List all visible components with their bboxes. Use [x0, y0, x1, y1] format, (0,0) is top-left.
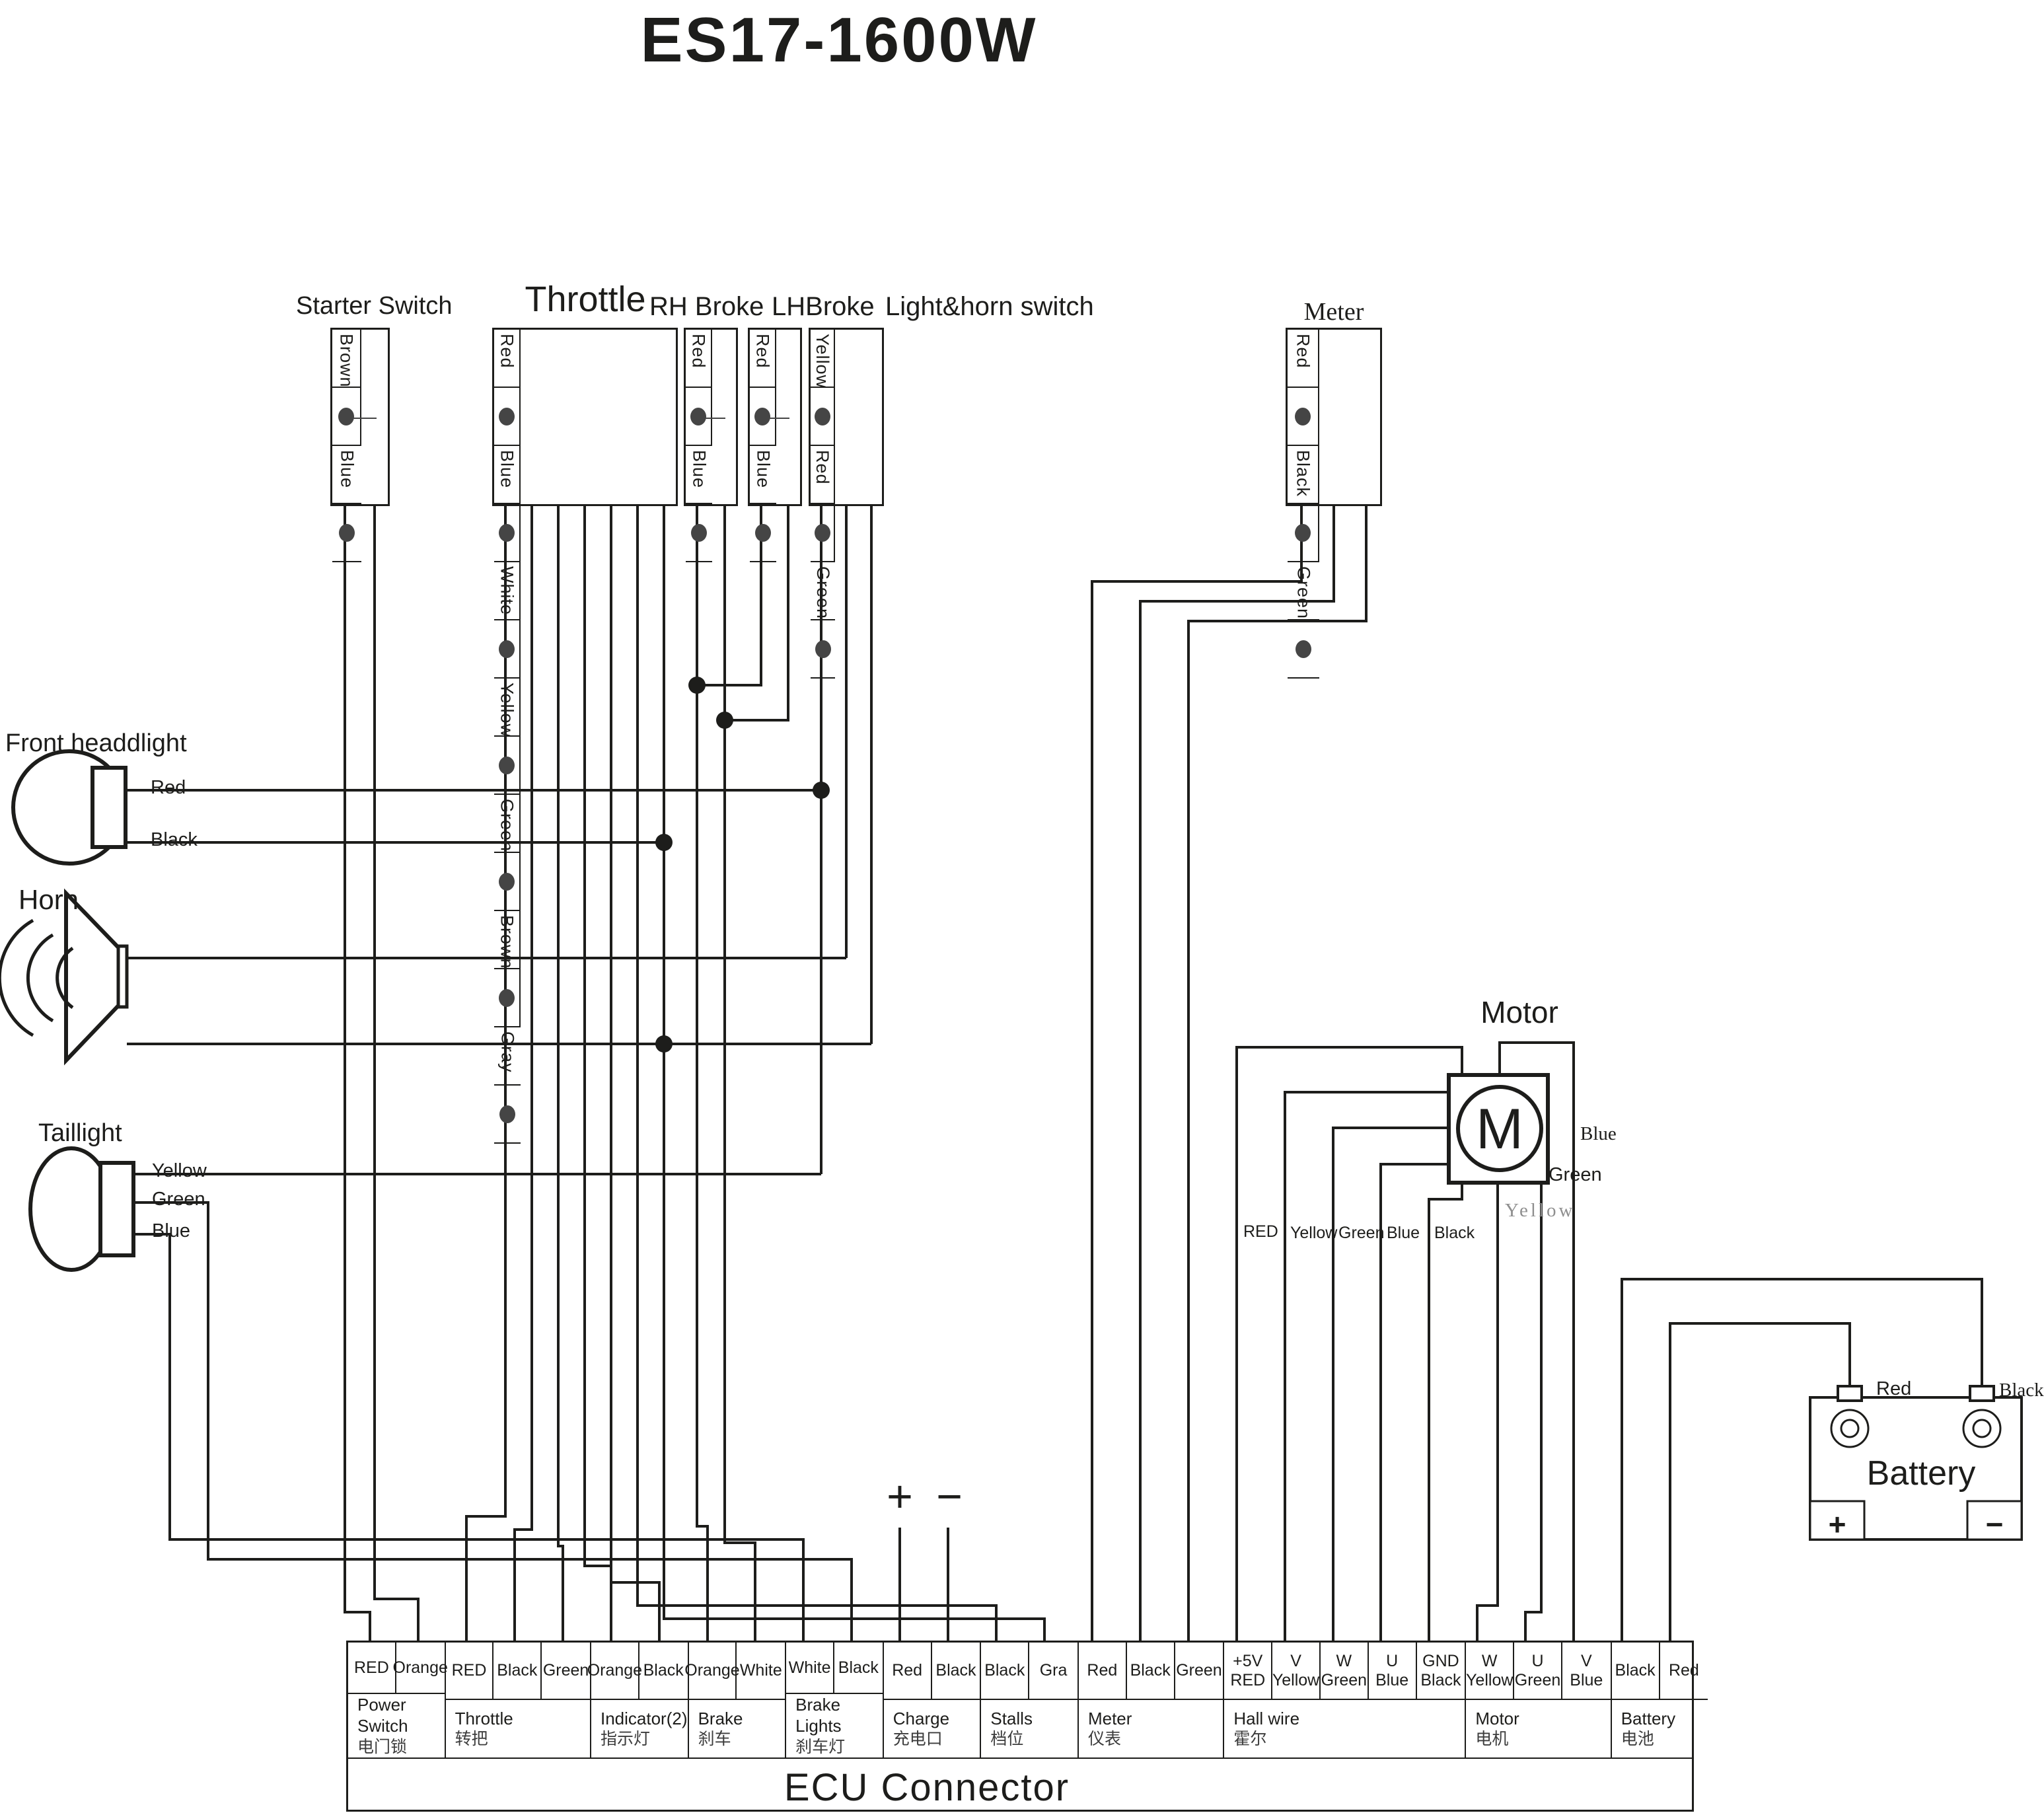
- pin-contact-dot: [815, 640, 831, 658]
- ecu-pin: Red: [884, 1643, 932, 1700]
- connector-pin: Blue: [332, 446, 361, 562]
- ecu-pin: Gra: [1029, 1643, 1077, 1700]
- pin-label: Red: [686, 330, 711, 388]
- wiring-diagram: ES17-1600W Starter Switch Throttle RH Br…: [0, 0, 2044, 1813]
- wire-phase-yellow: [1477, 1183, 1498, 1641]
- pin-label: Blue: [750, 446, 776, 504]
- motor-symbol: M: [1476, 1097, 1523, 1162]
- wire-hall-black: [1429, 1183, 1462, 1641]
- ecu-group: OrangeBlack Indicator(2) 指示灯: [591, 1643, 689, 1757]
- ecu-pin: RED: [446, 1643, 494, 1700]
- ecu-group: W YellowU GreenV Blue Motor 电机: [1466, 1643, 1611, 1757]
- pin-contact-dot: [1295, 524, 1311, 542]
- ecu-group: BlackGra Stalls 档位: [981, 1643, 1079, 1757]
- taillight-wire-blue-label: Blue: [152, 1220, 190, 1242]
- taillight-label: Taillight: [38, 1119, 122, 1148]
- ecu-group-name: Charge 充电口: [884, 1700, 980, 1757]
- starter-switch-connector: Brown Blue: [330, 328, 390, 506]
- wire-tail-green: [133, 1202, 852, 1641]
- taillight-wire-green-label: Green: [152, 1189, 205, 1210]
- wire-starter-brown: [345, 506, 370, 1641]
- connector-pin: Black: [1288, 446, 1319, 562]
- pin-label: Blue: [494, 446, 519, 504]
- ecu-pin: RED: [348, 1643, 396, 1694]
- motor-label: Motor: [1480, 994, 1558, 1030]
- connector-pin: Red: [750, 330, 776, 446]
- pin-label: Green: [811, 562, 835, 620]
- pin-contact-dot: [690, 408, 706, 425]
- page-title: ES17-1600W: [641, 4, 1038, 77]
- ecu-pin: U Blue: [1369, 1643, 1417, 1700]
- ecu-group: BlackRed Battery 电池: [1612, 1643, 1708, 1757]
- wire-meter-red: [1092, 506, 1301, 1641]
- ecu-group-name: Motor 电机: [1466, 1700, 1610, 1757]
- pin-label: Yellow: [494, 679, 519, 737]
- ecu-group-name: Stalls 档位: [981, 1700, 1077, 1757]
- taillight-icon: [30, 1148, 133, 1270]
- switch-bridge: [699, 418, 725, 419]
- hall-green-label: Green: [1338, 1224, 1384, 1243]
- light-horn-switch-title: Light&horn switch: [885, 292, 1094, 322]
- ecu-group-name: Meter 仪表: [1079, 1700, 1223, 1757]
- connector-pin: Yellow: [811, 330, 835, 446]
- pin-contact-dot: [1296, 640, 1311, 658]
- connector-pin: Brown: [332, 330, 361, 446]
- ecu-pin: Red: [1660, 1643, 1708, 1700]
- ecu-group-name-en: Indicator(2): [601, 1708, 688, 1730]
- ecu-group-name-cn: 刹车灯: [795, 1737, 883, 1757]
- wire-tail-blue: [133, 1234, 803, 1641]
- pin-contact-dot: [499, 640, 515, 658]
- pin-contact-dot: [691, 524, 707, 542]
- ecu-group-name-en: Throttle: [455, 1708, 590, 1730]
- ecu-group-name-en: Motor: [1475, 1708, 1610, 1730]
- headlight-wire-red-label: Red: [151, 777, 186, 799]
- ecu-group: REDOrange Power Switch 电门锁: [348, 1643, 446, 1757]
- hall-red-label: RED: [1243, 1222, 1278, 1241]
- wire-rh-blue: [725, 506, 755, 1641]
- ecu-group: OrangeWhite Brake 刹车: [689, 1643, 787, 1757]
- battery-label: Battery: [1867, 1454, 1976, 1493]
- pin-label: Green: [1288, 562, 1319, 620]
- pin-label: Red: [1288, 330, 1318, 388]
- headlight-icon: [13, 751, 126, 864]
- hall-blue-label: Blue: [1387, 1224, 1420, 1243]
- pin-contact-dot: [754, 408, 770, 425]
- ecu-group: RedBlackGreen Meter 仪表: [1079, 1643, 1224, 1757]
- pin-label: Blue: [332, 446, 361, 504]
- ecu-group-name-cn: 电池: [1621, 1729, 1708, 1750]
- ecu-group-name-cn: 霍尔: [1233, 1729, 1465, 1750]
- hall-black-label: Black: [1434, 1224, 1475, 1243]
- pin-contact-dot: [499, 408, 515, 425]
- ecu-pin: Green: [1175, 1643, 1223, 1700]
- pin-contact-dot: [338, 408, 354, 425]
- ecu-group-name-en: Battery: [1621, 1708, 1708, 1730]
- junction-dot: [716, 712, 733, 729]
- ecu-pin: White: [737, 1643, 785, 1700]
- ecu-pin: Orange: [591, 1643, 639, 1700]
- pin-label: Red: [750, 330, 775, 388]
- ecu-pin: Green: [542, 1643, 590, 1700]
- pin-label: White: [494, 562, 519, 620]
- junction-dot: [655, 1035, 673, 1053]
- ecu-group-name: Throttle 转把: [446, 1700, 590, 1757]
- wire-layer: [0, 0, 2044, 1813]
- connector-pin: White: [494, 562, 521, 679]
- phase-yellow-label: Yellow: [1505, 1200, 1575, 1222]
- ecu-group-name-cn: 仪表: [1088, 1729, 1223, 1750]
- connector-pin: Green: [494, 795, 521, 911]
- hall-yellow-label: Yellow: [1290, 1224, 1337, 1243]
- ecu-group-name-en: Hall wire: [1233, 1708, 1465, 1730]
- ecu-pin: Black: [639, 1643, 688, 1700]
- wire-meter-green: [1188, 506, 1366, 1641]
- ecu-group-name-cn: 刹车: [698, 1729, 785, 1750]
- connector-pin: Blue: [494, 446, 521, 562]
- wire-throttle-white: [558, 506, 563, 1641]
- switch-bridge: [347, 418, 377, 419]
- ecu-pin: V Yellow: [1272, 1643, 1321, 1700]
- ecu-pin: White: [786, 1643, 834, 1694]
- pin-contact-dot: [499, 1105, 515, 1123]
- connector-pin: Red: [811, 446, 835, 562]
- ecu-pin: Black: [1612, 1643, 1660, 1700]
- ecu-group-name-cn: 指示灯: [601, 1729, 688, 1750]
- lh-broke-title: LHBroke: [772, 292, 875, 322]
- wire-rh-red: [697, 506, 708, 1641]
- ecu-group-name-cn: 电机: [1475, 1729, 1610, 1750]
- phase-green-label: Green: [1549, 1164, 1602, 1186]
- ecu-group-name-en: Brake Lights: [795, 1694, 883, 1737]
- wire-hall-green: [1333, 1128, 1449, 1641]
- pin-label: Red: [811, 446, 834, 504]
- ecu-title: ECU Connector: [784, 1765, 1070, 1810]
- ecu-group: REDBlackGreen Throttle 转把: [446, 1643, 591, 1757]
- ecu-pin: Orange: [689, 1643, 737, 1700]
- ecu-group-name-cn: 充电口: [893, 1729, 980, 1750]
- pin-label: Brown: [332, 330, 360, 388]
- wire-hall-yellow: [1285, 1092, 1449, 1641]
- wire-throttle-yellow: [585, 506, 611, 1641]
- ecu-group: +5V REDV YellowW GreenU BlueGND Black Ha…: [1224, 1643, 1466, 1757]
- ecu-group-name: Brake 刹车: [689, 1700, 785, 1757]
- battery-black-label: Black: [1999, 1380, 2044, 1401]
- ecu-pin: Black: [834, 1643, 883, 1694]
- battery-terminal-tab-black: [1970, 1386, 1994, 1401]
- connector-pin: Gray: [494, 1027, 521, 1144]
- charge-minus-sign: −: [936, 1471, 963, 1522]
- horn-label: Horn: [18, 884, 79, 916]
- meter-connector: Red Black Green: [1286, 328, 1382, 506]
- ecu-group-name: Hall wire 霍尔: [1224, 1700, 1465, 1757]
- ecu-group-name: Power Switch 电门锁: [348, 1694, 445, 1757]
- pin-contact-dot: [339, 524, 355, 542]
- ecu-pin: W Green: [1321, 1643, 1369, 1700]
- connector-pin: Yellow: [494, 679, 521, 795]
- ecu-group-name: Indicator(2) 指示灯: [591, 1700, 688, 1757]
- ecu-pin: U Green: [1514, 1643, 1562, 1700]
- pin-label: Blue: [686, 446, 712, 504]
- taillight-wire-yellow-label: Yellow: [152, 1160, 207, 1182]
- pin-contact-dot: [815, 408, 830, 425]
- ecu-group-name-en: Stalls: [990, 1708, 1077, 1730]
- junction-dot: [655, 834, 673, 851]
- ecu-title-row: ECU Connector: [348, 1757, 1692, 1810]
- pin-label: Red: [494, 330, 519, 388]
- connector-pin: Blue: [686, 446, 712, 562]
- ecu-group-name-cn: 电门锁: [357, 1737, 445, 1757]
- battery-minus-sign: −: [1986, 1506, 2004, 1542]
- headlight-wire-black-label: Black: [151, 829, 198, 851]
- rh-broke-connector: Red Blue: [684, 328, 738, 506]
- ecu-pin: Orange: [396, 1643, 445, 1694]
- rh-broke-title: RH Broke: [649, 292, 764, 322]
- ecu-group: RedBlack Charge 充电口: [884, 1643, 982, 1757]
- ecu-pin: Black: [1127, 1643, 1175, 1700]
- pin-label: Gray: [494, 1027, 521, 1086]
- meter-title: Meter: [1304, 297, 1364, 326]
- charge-plus-sign: +: [887, 1471, 913, 1522]
- ecu-pin: GND Black: [1417, 1643, 1465, 1700]
- lh-broke-connector: Red Blue: [748, 328, 802, 506]
- ecu-pin: Black: [932, 1643, 980, 1700]
- ecu-pin: W Yellow: [1466, 1643, 1514, 1700]
- connector-pin: Brown: [494, 911, 521, 1027]
- ecu-pin: +5V RED: [1224, 1643, 1272, 1700]
- ecu-group-name-en: Meter: [1088, 1708, 1223, 1730]
- pin-contact-dot: [755, 524, 771, 542]
- ecu-group-name-en: Charge: [893, 1708, 980, 1730]
- ecu-pin: Black: [493, 1643, 542, 1700]
- battery-plus-sign: +: [1829, 1506, 1846, 1542]
- connector-pin: Red: [1288, 330, 1319, 446]
- ecu-pin: Black: [981, 1643, 1029, 1700]
- ecu-group-name: Brake Lights 刹车灯: [786, 1694, 883, 1757]
- pin-label: Black: [1288, 446, 1318, 504]
- wire-throttle-gray: [664, 506, 1044, 1641]
- ecu-group-name-cn: 档位: [990, 1729, 1077, 1750]
- throttle-connector: Red Blue White Yellow Green Brown: [492, 328, 678, 506]
- connector-pin: Red: [494, 330, 521, 446]
- phase-blue-label: Blue: [1580, 1123, 1617, 1145]
- throttle-title: Throttle: [525, 279, 645, 320]
- pin-contact-dot: [499, 989, 515, 1007]
- ecu-group-name-en: Power Switch: [357, 1694, 445, 1737]
- connector-pin: Green: [1288, 562, 1319, 679]
- starter-switch-title: Starter Switch: [296, 292, 453, 320]
- horn-icon: [0, 893, 127, 1060]
- pin-label: Yellow: [811, 330, 834, 388]
- battery-terminal-tab-red: [1838, 1386, 1862, 1401]
- ecu-group-name-cn: 转把: [455, 1729, 590, 1750]
- light-horn-switch-connector: Yellow Red Green: [809, 328, 884, 506]
- headlight-label: Front headdlight: [5, 729, 187, 758]
- pin-contact-dot: [499, 524, 515, 542]
- junction-dot: [813, 782, 830, 799]
- junction-dot: [688, 677, 706, 694]
- battery-red-label: Red: [1876, 1378, 1911, 1400]
- switch-bridge: [763, 418, 789, 419]
- connector-pin: Blue: [750, 446, 776, 562]
- wire-throttle-green: [611, 506, 659, 1641]
- pin-contact-dot: [499, 873, 515, 891]
- junction-dots: [655, 677, 830, 1053]
- wire-starter-blue: [375, 506, 418, 1641]
- ecu-group-name: Battery 电池: [1612, 1700, 1708, 1757]
- ecu-group: WhiteBlack Brake Lights 刹车灯: [786, 1643, 884, 1757]
- connector-pin: Green: [811, 562, 835, 679]
- pin-contact-dot: [1295, 408, 1311, 425]
- pin-contact-dot: [499, 757, 515, 774]
- pin-label: Brown: [494, 911, 519, 969]
- ecu-pin: Red: [1079, 1643, 1127, 1700]
- pin-label: Green: [494, 795, 519, 853]
- pin-contact-dot: [815, 524, 830, 542]
- connector-pin: Red: [686, 330, 712, 446]
- ecu-pin: V Blue: [1562, 1643, 1611, 1700]
- ecu-group-name-en: Brake: [698, 1708, 785, 1730]
- ecu-connector: REDOrange Power Switch 电门锁 REDBlackGreen…: [346, 1641, 1694, 1812]
